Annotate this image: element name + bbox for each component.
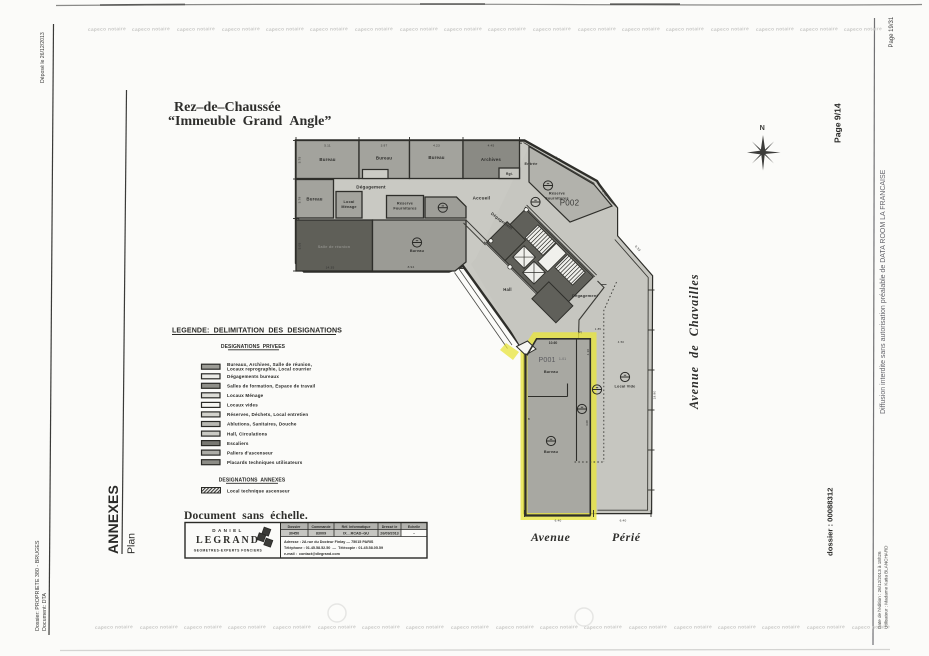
svg-text:3.08: 3.08 [585,420,589,426]
svg-text:Commande: Commande [311,525,330,529]
svg-text:Salles de formation, Espace de: Salles de formation, Espace de travail [227,384,315,389]
svg-text:Bureau: Bureau [544,450,559,454]
svg-text:Page 9/14: Page 9/14 [833,103,843,143]
svg-text:capeco notaire: capeco notaire [177,26,215,33]
svg-text:Réserve: Réserve [397,202,413,206]
svg-text:Réserve: Réserve [549,192,565,196]
svg-text:Placards techniques utilisateu: Placards techniques utilisateurs [227,460,303,465]
svg-text:30450: 30450 [289,531,299,535]
svg-text:capeco notaire: capeco notaire [674,624,712,631]
svg-text:capeco notaire: capeco notaire [362,624,400,631]
svg-text:Document sans échelle.: Document sans échelle. [184,510,308,522]
svg-text:capeco notaire: capeco notaire [266,26,304,33]
svg-text:capeco notaire: capeco notaire [578,26,616,33]
svg-text:Avenue: Avenue [530,530,570,544]
svg-text:Entrée: Entrée [524,162,537,166]
svg-text:capeco notaire: capeco notaire [629,624,667,631]
svg-text:Locaux Ménage: Locaux Ménage [227,393,264,398]
svg-text:LEGENDE: DELIMITATION DES D: LEGENDE: DELIMITATION DES DESIGNATIONS [172,327,342,335]
svg-text:Fournitures: Fournitures [393,207,416,211]
svg-text:“Immeuble Grand Angle”: “Immeuble Grand Angle” [168,114,331,129]
svg-text:capeco notaire: capeco notaire [318,624,356,631]
svg-text:Salle de réunion: Salle de réunion [318,245,351,249]
svg-text:Locaux reprographie, Local cou: Locaux reprographie, Local courrier [227,367,311,372]
svg-text:capeco notaire: capeco notaire [718,624,756,631]
svg-text:capeco notaire: capeco notaire [184,624,222,631]
svg-text:Rez–de–Chaussée: Rez–de–Chaussée [174,100,281,115]
svg-text:3.97: 3.97 [381,144,388,148]
svg-text:Avenue de Chavailles: Avenue de Chavailles [687,273,701,410]
svg-text:capeco notaire: capeco notaire [711,26,749,33]
svg-text:Archives: Archives [481,157,502,162]
svg-text:Escaliers: Escaliers [227,441,249,446]
svg-text:capeco notaire: capeco notaire [622,26,660,33]
svg-text:Bureau: Bureau [319,157,335,162]
svg-text:Document: DTA: Document: DTA [42,593,48,631]
svg-text:Bureau: Bureau [544,370,559,374]
svg-text:Réserves, Déchets, Local entre: Réserves, Déchets, Local entretien [227,412,308,417]
svg-text:Bureau: Bureau [306,197,322,202]
svg-text:e-mail : contact@dlegrand.com: e-mail : contact@dlegrand.com [284,552,341,556]
svg-text:capeco notaire: capeco notaire [488,26,526,33]
svg-text:GEOMETRES-EXPERTS FONCIERS: GEOMETRES-EXPERTS FONCIERS [194,549,263,553]
svg-text:capeco notaire: capeco notaire [762,624,800,631]
svg-text:capeco notaire: capeco notaire [132,26,170,33]
svg-text:capeco notaire: capeco notaire [756,26,794,33]
svg-text:Locaux vides: Locaux vides [227,403,258,408]
svg-text:Local Vide: Local Vide [615,385,636,389]
svg-text:Utilisateur : Madame Katia BLA: Utilisateur : Madame Katia BLANCHARD [884,545,889,629]
svg-text:(2): (2) [578,330,582,334]
svg-text:capeco notaire: capeco notaire [273,624,311,631]
svg-text:6.40: 6.40 [620,519,627,523]
svg-text:capeco notaire: capeco notaire [444,26,482,33]
svg-text:N: N [760,123,765,132]
svg-text:Hall: Hall [503,287,511,292]
svg-text:5.11: 5.11 [324,144,331,148]
svg-text:capeco notaire: capeco notaire [540,624,578,631]
svg-text:4.45: 4.45 [488,144,495,148]
svg-text:Adresse : 2A rue du Docteur Fi: Adresse : 2A rue du Docteur Finlay — 750… [284,540,374,544]
svg-text:Page 19/31: Page 19/31 [889,16,895,47]
svg-text:capeco notaire: capeco notaire [310,26,348,33]
svg-text:IX__RCAD–GU: IX__RCAD–GU [343,531,369,535]
svg-text:dossier : 00088312: dossier : 00088312 [826,488,835,556]
svg-text:Local technique ascenseur: Local technique ascenseur [227,489,290,494]
svg-text:Bureau: Bureau [376,156,392,161]
svg-text:B: B [528,417,530,421]
svg-text:capeco notaire: capeco notaire [95,624,133,631]
svg-text:Diffusion interdite sans autor: Diffusion interdite sans autorisation pr… [880,169,887,414]
svg-text:Bureau: Bureau [410,249,425,253]
svg-text:6.40: 6.40 [555,519,562,523]
svg-text:4.23: 4.23 [433,144,440,148]
svg-text:Paliers d'ascenseur: Paliers d'ascenseur [227,450,273,455]
svg-text:DESIGNATIONS ANNEXES: DESIGNATIONS ANNEXES [219,478,286,484]
svg-text:capeco notaire: capeco notaire [496,624,534,631]
svg-text:capeco notaire: capeco notaire [584,624,622,631]
svg-text:1-01: 1-01 [559,357,566,361]
svg-text:Date de l'édition : 26/12/2013: Date de l'édition : 26/12/2013 à 18h26 [877,551,882,629]
svg-text:Dégagement: Dégagement [572,293,598,298]
svg-text:Dégagements bureaux: Dégagements bureaux [227,374,279,379]
svg-text:DANIEL: DANIEL [212,528,244,533]
svg-text:Réf. Informatique: Réf. Informatique [342,525,371,529]
svg-text:capeco notaire: capeco notaire [451,624,489,631]
svg-text:1.85: 1.85 [595,327,602,331]
svg-text:26/09/2013: 26/09/2013 [380,531,398,535]
svg-text:3.75: 3.75 [298,157,302,164]
svg-text:capeco notaire: capeco notaire [400,26,438,33]
svg-text:19.80: 19.80 [653,391,657,400]
svg-text:capeco notaire: capeco notaire [800,26,838,33]
svg-text:Echelle: Echelle [408,525,420,529]
svg-text:LEGRAND: LEGRAND [196,535,260,546]
svg-text:ANNEXES: ANNEXES [105,485,121,554]
svg-text:capeco notaire: capeco notaire [228,624,266,631]
svg-text:capeco notaire: capeco notaire [533,26,571,33]
svg-text:Périé: Périé [612,530,641,544]
svg-text:Ménage: Ménage [341,205,356,209]
svg-text:Dressé le: Dressé le [382,525,398,529]
svg-text:P001: P001 [539,357,556,364]
svg-text:Hall, Circulations: Hall, Circulations [227,431,268,436]
svg-text:4.30: 4.30 [586,349,590,356]
svg-text:Accueil: Accueil [473,196,491,201]
svg-text:Ablutions, Sanitaires, Douche: Ablutions, Sanitaires, Douche [227,422,297,427]
svg-text:–: – [413,531,415,535]
svg-text:capeco notaire: capeco notaire [355,26,393,33]
svg-text:capeco notaire: capeco notaire [666,26,704,33]
svg-text:4.50: 4.50 [618,340,625,344]
svg-text:DESIGNATIONS PRIVEES: DESIGNATIONS PRIVEES [221,344,286,350]
svg-text:Téléphone : 01.45.58.52.50 —: Téléphone : 01.45.58.52.50 — Télécopie :… [284,546,383,550]
svg-text:3.78: 3.78 [298,197,302,204]
svg-text:Dossier: PROPRIETE 380 - BRUGE: Dossier: PROPRIETE 380 - BRUGES [35,540,41,631]
svg-text:83009: 83009 [316,531,326,535]
svg-text:Déposé le 26/12/2013: Déposé le 26/12/2013 [40,32,46,83]
svg-text:Dossier: Dossier [288,525,301,529]
svg-text:5.05: 5.05 [298,243,302,250]
svg-text:Dégagement: Dégagement [356,185,386,190]
svg-text:8.94: 8.94 [408,265,415,269]
svg-text:P002: P002 [560,199,580,208]
svg-text:capeco notaire: capeco notaire [140,624,178,631]
svg-text:capeco notaire: capeco notaire [844,26,882,33]
svg-text:capeco notaire: capeco notaire [406,624,444,631]
svg-text:capeco notaire: capeco notaire [222,26,260,33]
svg-text:14.35: 14.35 [326,266,335,270]
svg-text:Local: Local [344,200,355,204]
svg-text:Plan: Plan [126,533,138,554]
svg-text:Rgt.: Rgt. [506,172,513,176]
svg-text:capeco notaire: capeco notaire [807,624,845,631]
svg-text:6.33: 6.33 [634,244,642,252]
svg-text:10.60: 10.60 [549,341,558,345]
svg-text:capeco notaire: capeco notaire [88,26,126,33]
svg-text:Bureau: Bureau [428,155,444,160]
